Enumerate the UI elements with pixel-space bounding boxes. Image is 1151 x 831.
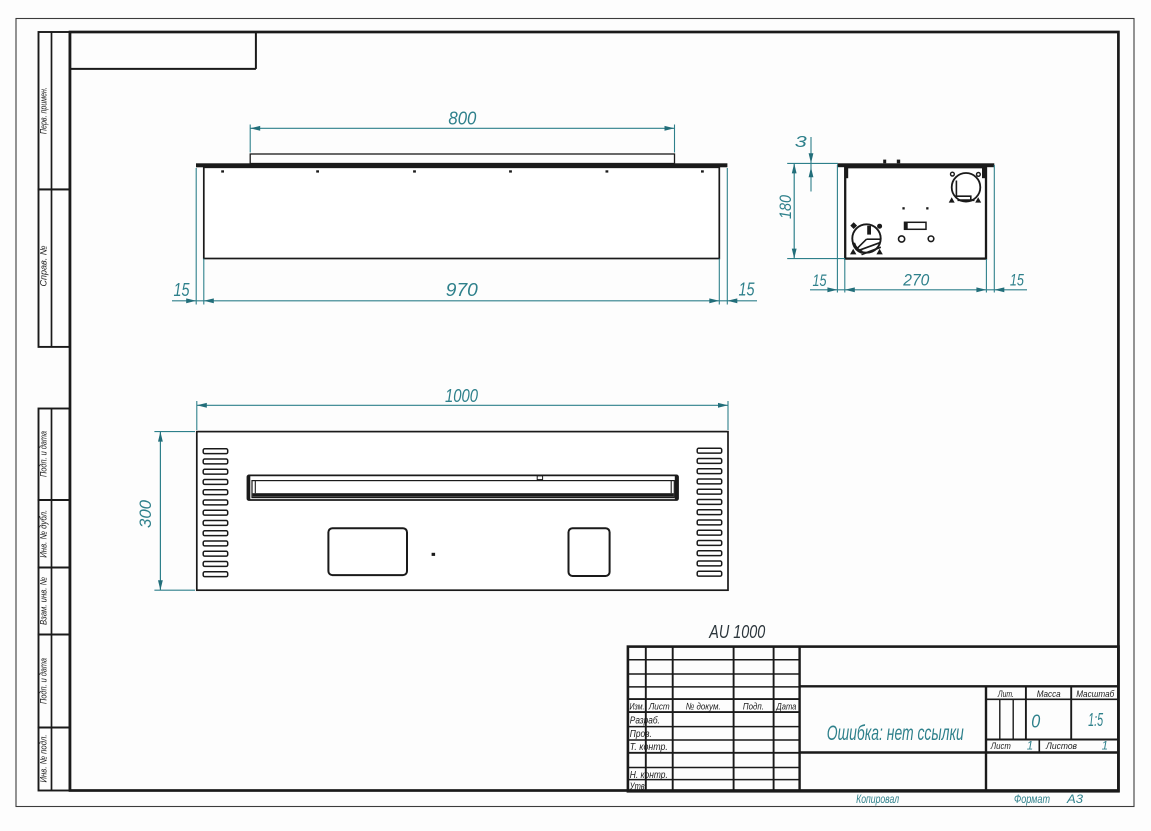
svg-text:1:5: 1:5 (1088, 710, 1104, 730)
svg-text:15: 15 (813, 272, 828, 290)
svg-text:Перв. примен.: Перв. примен. (39, 87, 49, 134)
svg-text:Масса: Масса (1037, 689, 1061, 699)
svg-text:Инв. № подл.: Инв. № подл. (39, 735, 49, 783)
svg-text:15: 15 (1010, 271, 1025, 289)
svg-text:180: 180 (777, 194, 795, 219)
svg-text:15: 15 (739, 279, 756, 299)
svg-text:970: 970 (446, 280, 478, 300)
svg-text:Листов: Листов (1045, 741, 1077, 752)
svg-text:Масштаб: Масштаб (1076, 689, 1115, 699)
svg-text:Дата: Дата (776, 702, 797, 713)
svg-text:300: 300 (137, 499, 155, 528)
svg-text:Справ. №: Справ. № (39, 246, 49, 287)
svg-text:1000: 1000 (445, 386, 478, 406)
svg-text:Подп.: Подп. (743, 702, 764, 713)
svg-text:800: 800 (448, 109, 476, 129)
svg-text:Т. контр.: Т. контр. (630, 742, 668, 753)
svg-text:1: 1 (1027, 741, 1033, 753)
svg-text:Лит.: Лит. (997, 689, 1014, 699)
svg-text:270: 270 (902, 271, 930, 289)
svg-text:0: 0 (1031, 712, 1040, 732)
svg-text:AU 1000: AU 1000 (709, 622, 766, 642)
svg-text:Копировал: Копировал (856, 794, 899, 806)
svg-text:Лист: Лист (648, 702, 670, 713)
svg-text:Н. контр.: Н. контр. (630, 770, 668, 781)
svg-text:15: 15 (174, 280, 191, 300)
svg-text:Формат: Формат (1014, 794, 1050, 806)
svg-text:А3: А3 (1066, 794, 1084, 806)
svg-text:Утв.: Утв. (629, 781, 647, 792)
svg-text:Разраб.: Разраб. (630, 715, 660, 726)
svg-text:Изм.: Изм. (630, 702, 645, 713)
svg-text:№ докум.: № докум. (686, 702, 721, 713)
svg-text:Ошибка: нет ссылки: Ошибка: нет ссылки (827, 722, 964, 745)
svg-text:3: 3 (795, 134, 807, 151)
svg-text:Пров.: Пров. (630, 729, 652, 740)
svg-text:1: 1 (1102, 741, 1108, 753)
svg-text:Подп. и дата: Подп. и дата (39, 431, 49, 477)
svg-text:Взам. инв. №: Взам. инв. № (39, 577, 49, 625)
svg-text:Подп. и дата: Подп. и дата (39, 658, 49, 704)
svg-text:Лист: Лист (990, 741, 1011, 752)
svg-text:Инв. № дубл.: Инв. № дубл. (39, 510, 49, 558)
